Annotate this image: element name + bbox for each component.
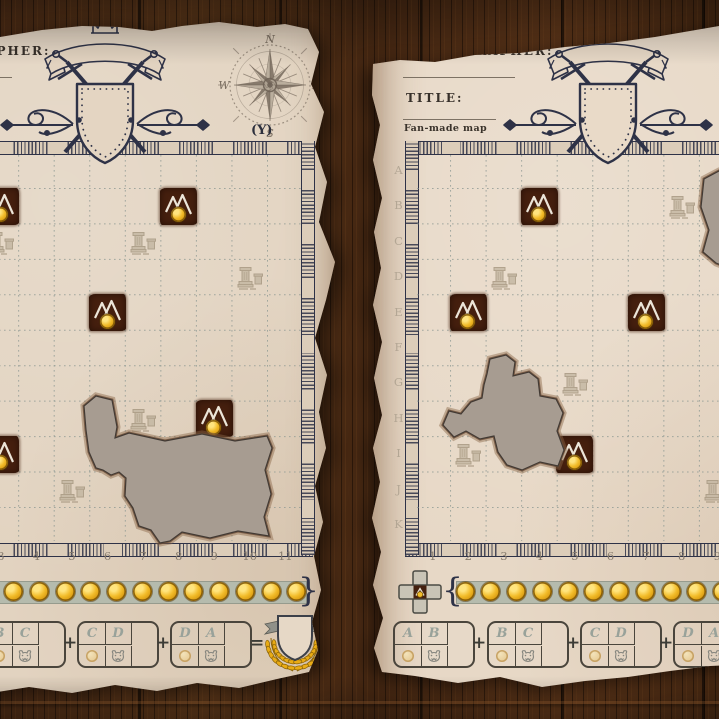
monster-icon (520, 649, 536, 663)
coin-score-cell (582, 646, 609, 666)
mountain-cross-legend-icon (397, 569, 443, 615)
mountain-tile (521, 188, 558, 225)
ruins-marker (561, 370, 589, 398)
ruins-icon (129, 406, 157, 434)
coin-track-coin (210, 582, 229, 601)
map-sheet-left: CARTOGRAPHER: TITLE: Fan-made map (Y) (0, 0, 347, 719)
map-subtitle: Fan-made map (404, 123, 487, 134)
col-label-6: 6 (98, 549, 118, 563)
mountain-tile (628, 294, 665, 331)
compass-w: W (218, 79, 231, 92)
plus-sign: + (659, 633, 673, 653)
ruins-icon (454, 441, 482, 469)
col-label-9: 9 (707, 549, 719, 563)
coin-track-coin (456, 582, 475, 601)
title-input-line[interactable] (403, 119, 496, 120)
col-label-7: 7 (636, 549, 656, 563)
compass-e: E (311, 79, 320, 92)
coin-track-coin (610, 582, 629, 601)
col-label-5: 5 (565, 549, 585, 563)
col-label-11: 11 (275, 549, 295, 563)
monster-score-cell (421, 646, 448, 666)
edict-letter: D (675, 623, 702, 645)
axis-y-label: (Y) (251, 123, 273, 138)
paper-sheet: CARTOGRAPHER: TITLE: Fan-made map (Y) (370, 0, 719, 719)
coin-track-coin (662, 582, 681, 601)
coin-track-coin (56, 582, 75, 601)
ruins-icon (58, 477, 86, 505)
col-label-3: 3 (494, 549, 514, 563)
season-total-cell[interactable] (543, 623, 567, 666)
row-label-J: J (390, 482, 407, 496)
monster-icon (426, 649, 442, 663)
row-label-E: E (390, 305, 407, 319)
coin-track-coin (107, 582, 126, 601)
equals-sign: = (250, 633, 264, 653)
map-sheet-right: CARTOGRAPHER: TITLE: Fan-made map (Y) (370, 0, 719, 719)
season-total-cell[interactable] (636, 623, 660, 666)
edict-letter: B (421, 623, 448, 645)
monster-icon (613, 649, 629, 663)
ruins-icon (703, 477, 719, 505)
coin-track-coin (262, 582, 281, 601)
coin-icon (171, 207, 186, 222)
cartographer-label: CARTOGRAPHER: (0, 44, 50, 58)
col-label-2: 2 (458, 549, 478, 563)
coin-score-cell (79, 646, 106, 666)
coin-score-cell (675, 646, 702, 666)
row-label-G: G (390, 375, 407, 389)
plus-sign: + (566, 633, 580, 653)
wood-table: CARTOGRAPHER: TITLE: Fan-made map (Y) (0, 0, 719, 719)
ruins-icon (0, 229, 15, 257)
row-label-B: B (390, 198, 407, 212)
row-label-K: K (390, 517, 407, 531)
coin-track-coin (507, 582, 526, 601)
ruins-icon (668, 193, 696, 221)
col-label-4: 4 (529, 549, 549, 563)
edict-letter: D (105, 623, 132, 645)
cartographer-label: CARTOGRAPHER: (406, 44, 553, 58)
coin-icon (100, 314, 115, 329)
mountain-tile (556, 436, 593, 473)
monster-score-cell (198, 646, 225, 666)
col-label-5: 5 (62, 549, 82, 563)
coin-score-cell (172, 646, 199, 666)
coin-icon (0, 650, 5, 662)
mountain-tile (0, 436, 19, 473)
season-total-cell[interactable] (133, 623, 157, 666)
row-label-A: A (390, 163, 407, 177)
coin-icon (682, 650, 694, 662)
monster-icon (706, 649, 719, 663)
ruins-marker (129, 229, 157, 257)
score-box-winter[interactable]: D A (673, 621, 719, 668)
cartographer-input-line[interactable] (403, 77, 515, 78)
ruins-icon (561, 370, 589, 398)
ruins-marker (129, 406, 157, 434)
ruins-marker (0, 229, 15, 257)
coin-track-coin (636, 582, 655, 601)
col-label-9: 9 (204, 549, 224, 563)
map-border-right (301, 141, 315, 555)
ruins-marker (236, 264, 264, 292)
monster-score-cell (515, 646, 542, 666)
season-total-cell[interactable] (449, 623, 473, 666)
edict-letter: D (608, 623, 635, 645)
final-score-laurel-icon (263, 608, 327, 678)
compass-n: N (264, 33, 275, 46)
cartographer-input-line[interactable] (0, 77, 12, 78)
monster-icon (17, 649, 33, 663)
compass-rose-icon: N E S W (713, 25, 719, 145)
coin-icon (86, 650, 98, 662)
score-box-summer[interactable]: B C (0, 621, 66, 668)
score-box-summer[interactable]: B C (487, 621, 569, 668)
coin-icon (460, 314, 475, 329)
edict-letter: C (582, 623, 609, 645)
col-label-1: 1 (423, 549, 443, 563)
score-box-fall[interactable]: C D (580, 621, 662, 668)
edict-letter: D (172, 623, 199, 645)
ruins-icon (129, 229, 157, 257)
coin-icon (496, 650, 508, 662)
coin-track-coin (133, 582, 152, 601)
title-label: TITLE: (406, 91, 464, 105)
col-label-8: 8 (672, 549, 692, 563)
ruins-marker (668, 193, 696, 221)
score-box-spring[interactable]: A B (393, 621, 475, 668)
coin-score-cell (489, 646, 516, 666)
row-label-F: F (390, 340, 407, 354)
monster-icon (110, 649, 126, 663)
edict-letter: B (489, 623, 516, 645)
edict-letter: A (395, 623, 422, 645)
monster-score-cell (608, 646, 635, 666)
monster-score-cell (105, 646, 132, 666)
mountain-tile (89, 294, 126, 331)
plus-sign: + (156, 633, 170, 653)
ruins-marker (58, 477, 86, 505)
paper-sheet: CARTOGRAPHER: TITLE: Fan-made map (Y) (0, 0, 347, 719)
coin-track-coin (236, 582, 255, 601)
edict-letter: C (12, 623, 39, 645)
ruins-icon (490, 264, 518, 292)
monster-icon (203, 649, 219, 663)
coin-track-coin (533, 582, 552, 601)
score-box-fall[interactable]: C D (77, 621, 159, 668)
col-label-3: 3 (0, 549, 11, 563)
coin-score-cell (395, 646, 422, 666)
coin-track-coin (559, 582, 578, 601)
monster-score-cell (12, 646, 39, 666)
col-label-4: 4 (26, 549, 46, 563)
coin-icon (638, 314, 653, 329)
row-label-D: D (390, 269, 407, 283)
plus-sign: + (472, 633, 486, 653)
monster-score-cell (701, 646, 719, 666)
coin-icon (179, 650, 191, 662)
col-label-7: 7 (133, 549, 153, 563)
row-label-H: H (390, 411, 407, 425)
plus-sign: + (63, 633, 77, 653)
mountain-tile (160, 188, 197, 225)
edict-letter: A (198, 623, 225, 645)
ruins-icon (236, 264, 264, 292)
edict-letter: C (79, 623, 106, 645)
row-label-C: C (390, 234, 407, 248)
ruins-marker (703, 477, 719, 505)
season-total-cell[interactable] (226, 623, 250, 666)
map-grid[interactable] (0, 153, 303, 543)
mountain-tile (0, 188, 19, 225)
map-border-bottom (0, 543, 313, 557)
col-label-8: 8 (169, 549, 189, 563)
score-box-winter[interactable]: D A (170, 621, 252, 668)
col-label-10: 10 (240, 549, 260, 563)
edict-letter: C (515, 623, 542, 645)
ruins-marker (454, 441, 482, 469)
coin-track-coin (159, 582, 178, 601)
season-total-cell[interactable] (40, 623, 64, 666)
coin-icon (206, 420, 221, 435)
mountain-tile (450, 294, 487, 331)
ruins-marker (490, 264, 518, 292)
coin-track-coin (30, 582, 49, 601)
coin-icon (589, 650, 601, 662)
col-label-6: 6 (601, 549, 621, 563)
coin-icon (402, 650, 414, 662)
mountain-tile (196, 400, 233, 437)
edict-letter: A (701, 623, 719, 645)
coin-track-coin (4, 582, 23, 601)
row-label-I: I (390, 446, 407, 460)
